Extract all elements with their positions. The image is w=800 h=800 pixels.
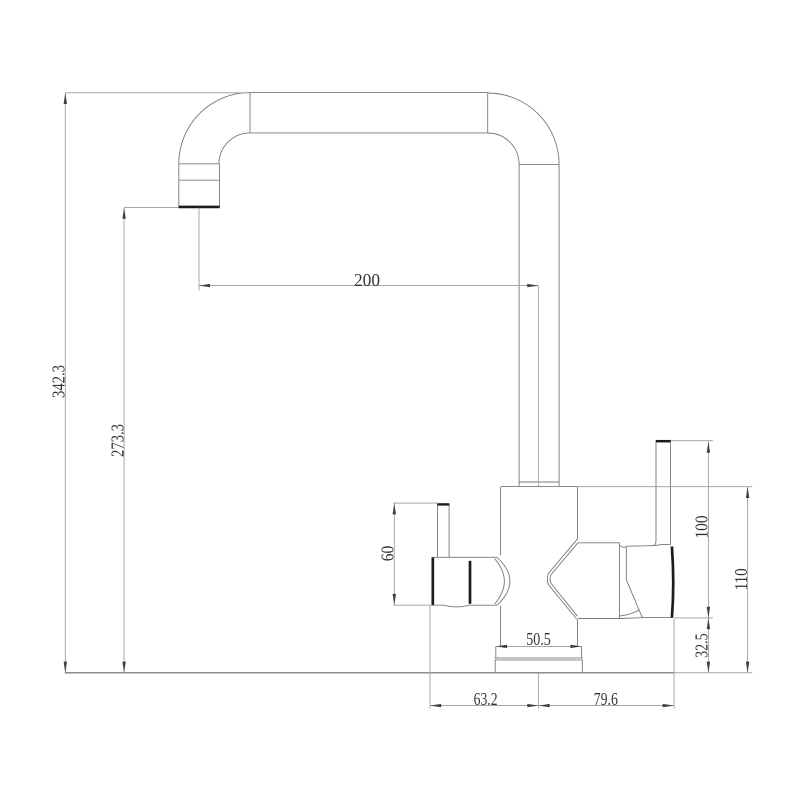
svg-text:342.3: 342.3 [49,365,69,398]
svg-text:200: 200 [354,270,380,290]
svg-text:100: 100 [692,516,712,539]
svg-text:273.3: 273.3 [107,424,127,457]
svg-text:110: 110 [731,568,751,590]
svg-text:79.6: 79.6 [594,689,618,709]
svg-text:60: 60 [378,546,398,562]
svg-text:63.2: 63.2 [474,689,498,709]
svg-text:32.5: 32.5 [692,633,712,658]
svg-text:50.5: 50.5 [526,629,551,649]
